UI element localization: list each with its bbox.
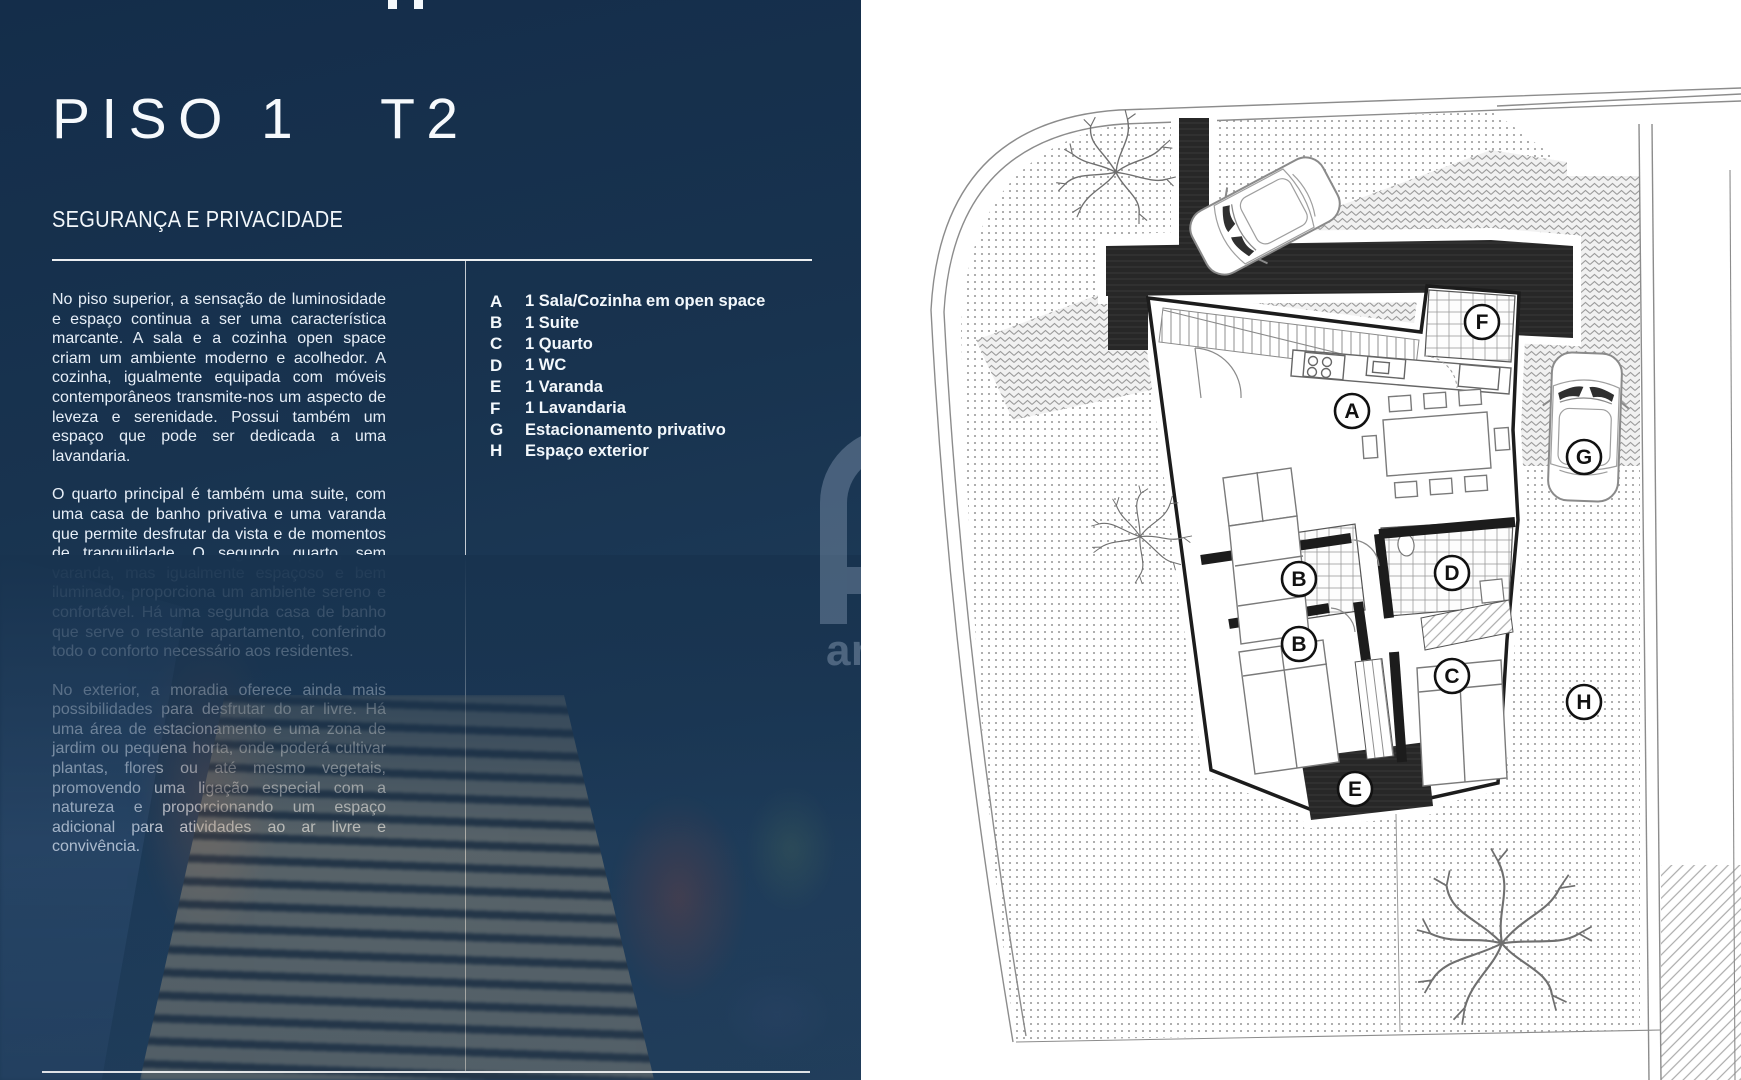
floor-title: PISO 1 [52,86,304,152]
site-plan-drawing: A F G B D [861,0,1741,1080]
legend-label: 1 Suite [525,314,579,333]
description-paragraph: No piso superior, a sensação de luminosi… [52,290,386,466]
car-parked-icon [1539,352,1630,503]
legend-row: E 1 Varanda [490,377,820,398]
brand-logo-icon [388,0,428,9]
legend-key: A [490,292,525,312]
room-label-a: A [1335,394,1369,428]
legend-key: B [490,313,525,333]
room-label-h: H [1567,685,1601,719]
page-title: PISO 1 T2 [52,86,469,152]
room-label-f: F [1465,305,1499,339]
watermark: an [820,428,861,688]
legend-label: 1 WC [525,356,566,375]
legend-row: H Espaço exterior [490,441,820,462]
room-label-g: G [1567,440,1601,474]
watermark-text: an [826,626,861,676]
legend-label: Estacionamento privativo [525,421,726,440]
svg-text:A: A [1344,400,1359,423]
room-label-e: E [1338,772,1372,806]
room-label-d: D [1435,556,1469,590]
legend-row: A 1 Sala/Cozinha em open space [490,291,820,312]
legend-label: 1 Quarto [525,335,593,354]
legend-key: C [490,334,525,354]
legend-key: D [490,356,525,376]
bottom-rule [42,1071,810,1073]
legend-row: F 1 Lavandaria [490,398,820,419]
legend-label: 1 Varanda [525,378,603,397]
room-legend: A 1 Sala/Cozinha em open space B 1 Suite… [490,291,820,462]
background-photo [0,555,861,1080]
legend-row: B 1 Suite [490,312,820,333]
svg-text:B: B [1291,633,1306,656]
typology-title: T2 [380,86,469,152]
svg-text:E: E [1348,778,1362,801]
svg-text:C: C [1444,665,1459,688]
info-panel: PISO 1 T2 SEGURANÇA E PRIVACIDADE No pis… [0,0,861,1080]
legend-row: D 1 WC [490,355,820,376]
svg-text:F: F [1476,311,1489,334]
legend-row: G Estacionamento privativo [490,419,820,440]
legend-key: H [490,441,525,461]
legend-label: Espaço exterior [525,442,649,461]
exterior-hatch-corner [1661,865,1741,1080]
legend-label: 1 Sala/Cozinha em open space [525,292,765,311]
watermark-letter-icon [820,428,861,624]
room-label-c: C [1435,659,1469,693]
bed-suite [1239,640,1339,774]
legend-key: G [490,420,525,440]
svg-text:H: H [1576,691,1591,714]
room-label-b-bath: B [1282,562,1316,596]
floor-plan-sheet: A F G B D [861,0,1741,1080]
top-rule [52,259,812,261]
room-label-b-bed: B [1282,627,1316,661]
photo-fade-overlay [0,555,861,1080]
legend-key: F [490,399,525,419]
page-subtitle: SEGURANÇA E PRIVACIDADE [52,206,343,233]
legend-label: 1 Lavandaria [525,399,626,418]
legend-row: C 1 Quarto [490,334,820,355]
svg-text:G: G [1576,446,1592,469]
svg-text:B: B [1291,568,1306,591]
legend-key: E [490,377,525,397]
svg-text:D: D [1444,562,1459,585]
brochure-page: PISO 1 T2 SEGURANÇA E PRIVACIDADE No pis… [0,0,1741,1080]
